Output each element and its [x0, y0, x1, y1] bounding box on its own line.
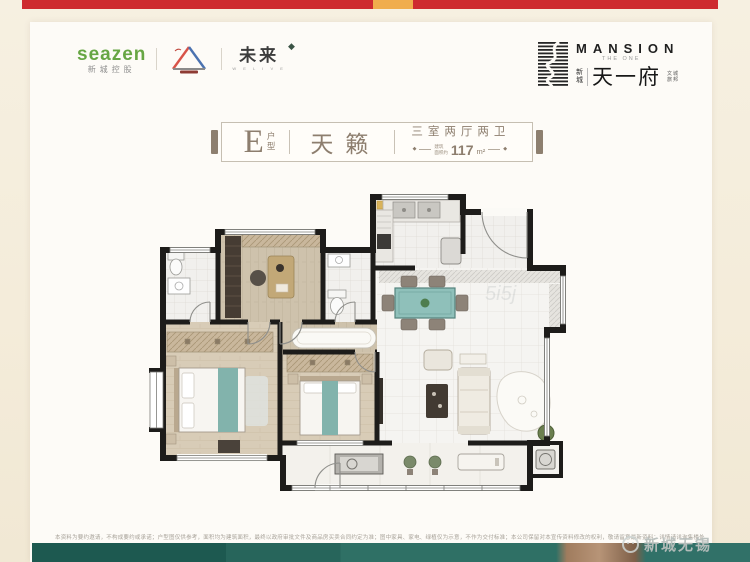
- study-chair: [250, 270, 266, 286]
- coffee-table: [426, 384, 448, 418]
- header-logo-group-right: MANSION THE ONE 新 城 天一府 文旅 城邦: [538, 42, 679, 88]
- footer-watermark: 新城无锡: [622, 534, 712, 555]
- future-label-text: 未来: [239, 47, 279, 64]
- disclaimer-text: 本资料为要约邀请，不构成要约或承诺；户型图仅供参考，面积均为建筑面积，最终以政府…: [55, 533, 705, 541]
- unit-title-block: E 户 型 天籁 三室两厅两卫 ◆ 建筑 面积约 117 m² ◆: [221, 122, 533, 162]
- title-divider: [394, 130, 395, 154]
- mansion-cn-name-text: 天一府: [592, 67, 661, 88]
- armchair: [424, 350, 452, 370]
- mansion-wordmark: MANSION THE ONE 新 城 天一府 文旅 城邦: [576, 42, 679, 88]
- logo-divider: [156, 48, 157, 70]
- diamond-icon: ◆: [503, 147, 507, 152]
- triangle-logo-icon: [167, 44, 211, 74]
- seazen-brand-text: seazen: [77, 45, 146, 64]
- area-unit: m²: [477, 148, 486, 156]
- watermark-text: 新城无锡: [644, 534, 712, 555]
- floorplan-drawing: 5i5j: [130, 192, 566, 500]
- cn-divider: [587, 68, 588, 86]
- kitchen-stove: [377, 234, 391, 249]
- title-divider: [289, 130, 290, 154]
- future-logo: 未来 ◆ W E L I V E: [232, 47, 286, 71]
- mansion-cn-row: 新 城 天一府 文旅 城邦: [576, 67, 679, 88]
- unit-spec-block: 三室两厅两卫 ◆ 建筑 面积约 117 m² ◆: [409, 127, 510, 157]
- title-cap-right: [536, 130, 543, 154]
- watermark-logo-icon: [622, 536, 639, 553]
- plant-stand: [404, 456, 416, 468]
- bath2-sink: [328, 254, 350, 267]
- plant-stand: [429, 456, 441, 468]
- seazen-sub-text: 新城控股: [88, 66, 136, 74]
- sofa: [458, 368, 490, 434]
- diamond-icon: ◆: [413, 147, 417, 152]
- area-rule-line: [488, 149, 500, 150]
- future-diamond-icon: ◆: [288, 42, 295, 51]
- mansion-cn-prefix: 新 城: [576, 69, 583, 85]
- unit-type-suffix: 户 型: [267, 132, 276, 152]
- top-orange-segment: [373, 0, 413, 9]
- unit-type: E 户 型: [244, 126, 276, 159]
- top-red-bar: [22, 0, 718, 9]
- future-tagline-text: W E L I V E: [232, 67, 286, 71]
- plan-watermark: 5i5j: [485, 283, 517, 305]
- logo-divider: [221, 48, 222, 70]
- area-rule-line: [419, 149, 431, 150]
- area-label: 建筑 面积约: [434, 144, 448, 155]
- unit-spec-text: 三室两厅两卫: [409, 127, 510, 139]
- area-value: 117: [451, 143, 474, 157]
- cn-prefix-char: 城: [576, 77, 583, 85]
- tv-unit: [379, 378, 383, 424]
- bath1-sink: [168, 278, 190, 294]
- unit-name: 天籁: [304, 125, 380, 159]
- seazen-logo: seazen 新城控股: [77, 45, 146, 74]
- mansion-cn-side-text: 文旅 城邦: [667, 71, 678, 83]
- bedroom2-bed: [288, 374, 372, 435]
- unit-type-letter: E: [244, 126, 264, 159]
- ac-unit: [536, 450, 555, 469]
- title-cap-left: [211, 130, 218, 154]
- poster-page: seazen 新城控股 未来 ◆ W E L I V E: [0, 0, 750, 562]
- mansion-lines-icon: [538, 42, 568, 88]
- mansion-title-text: MANSION: [576, 42, 679, 55]
- header-logo-group-left: seazen 新城控股 未来 ◆ W E L I V E: [77, 44, 286, 74]
- hallway-rug: [292, 328, 376, 348]
- mansion-subtitle-text: THE ONE: [602, 57, 679, 63]
- bath2-toilet: [331, 298, 344, 315]
- cn-prefix-char: 新: [576, 69, 583, 77]
- kitchen-fridge: [441, 238, 461, 264]
- unit-area-row: ◆ 建筑 面积约 117 m² ◆: [413, 143, 508, 157]
